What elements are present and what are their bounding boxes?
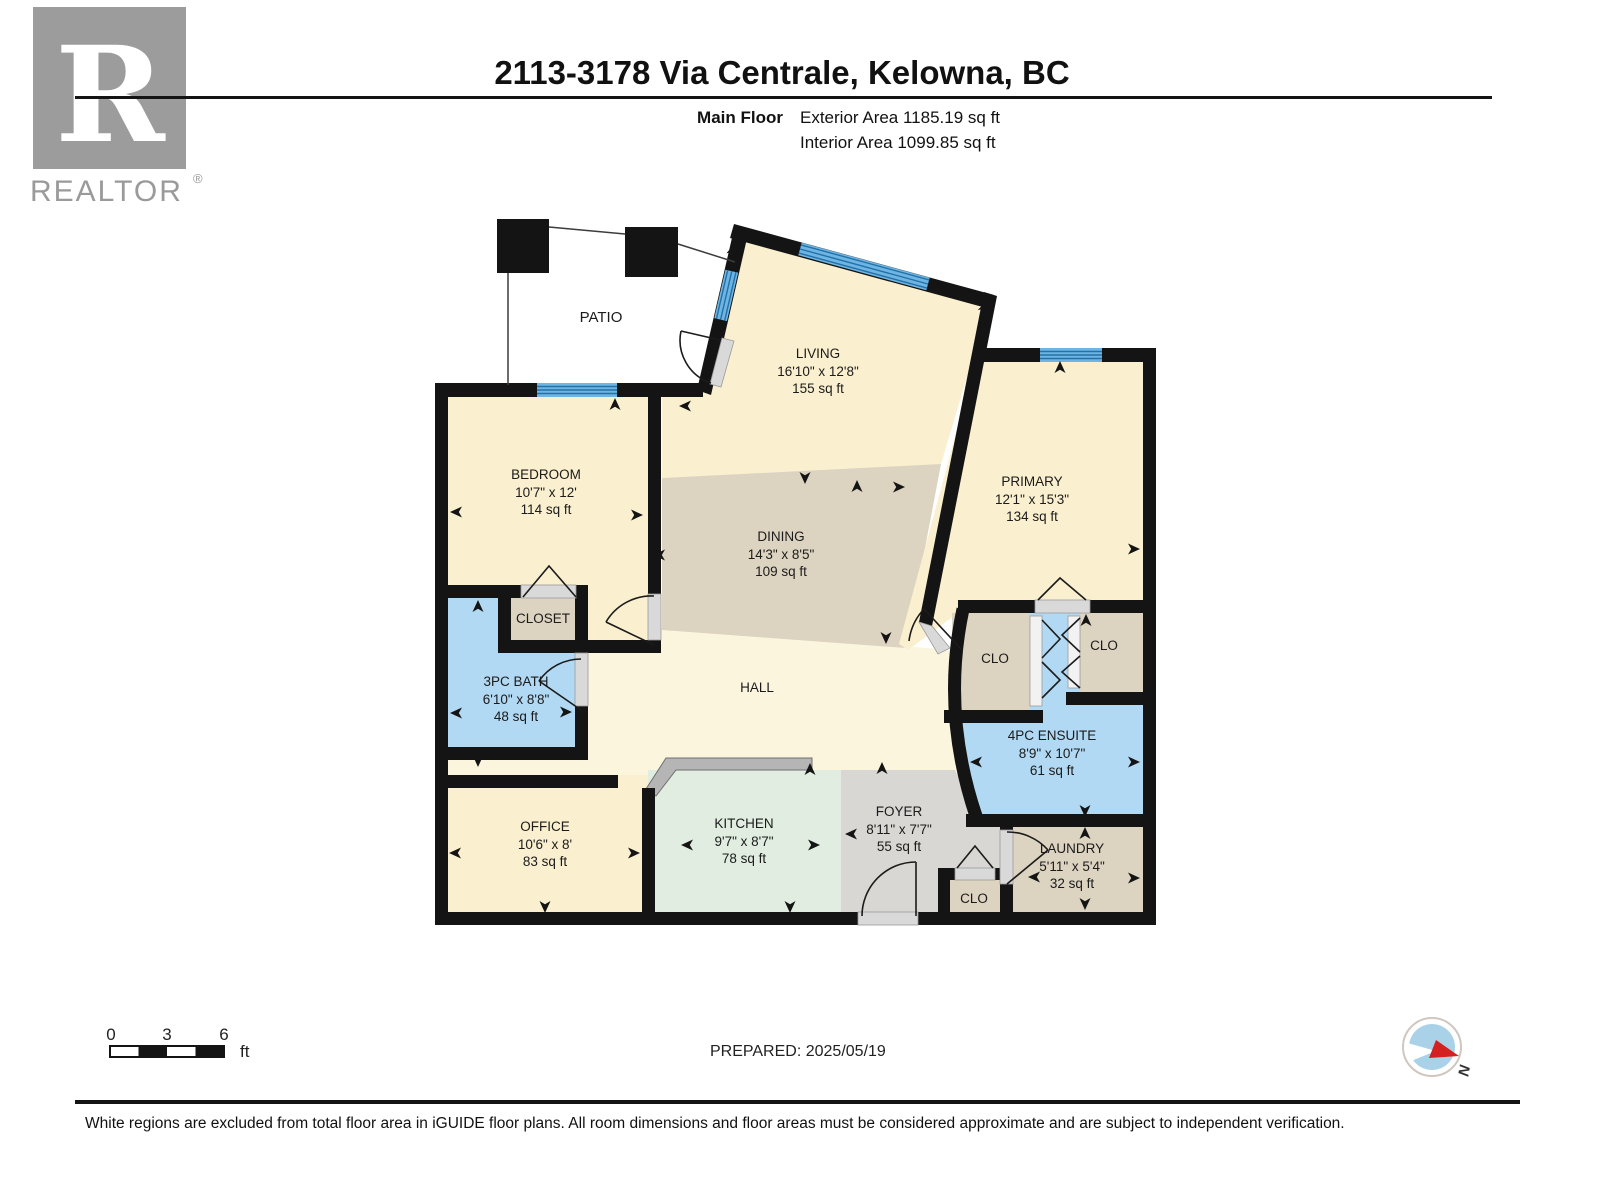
page-title: 2113-3178 Via Centrale, Kelowna, BC xyxy=(494,54,1069,91)
scale-bar-segment xyxy=(139,1046,168,1057)
floorplan: PATIO LIVING 16'10" x 12'8" 155 sq ft BE… xyxy=(435,219,1156,925)
scale-unit: ft xyxy=(240,1042,250,1061)
primary-window xyxy=(1040,348,1102,362)
footer-disclaimer: White regions are excluded from total fl… xyxy=(85,1115,1345,1132)
header-divider xyxy=(75,96,1492,99)
svg-text:PATIO: PATIO xyxy=(580,309,623,326)
room-kitchen-label: KITCHEN 9'7" x 8'7" 78 sq ft xyxy=(714,816,773,866)
svg-text:CLOSET: CLOSET xyxy=(516,611,570,626)
svg-text:BEDROOM: BEDROOM xyxy=(511,467,581,482)
svg-text:OFFICE: OFFICE xyxy=(520,819,570,834)
room-hall-label: HALL xyxy=(740,680,774,695)
footer-divider xyxy=(75,1100,1520,1104)
svg-text:HALL: HALL xyxy=(740,680,774,695)
svg-text:83 sq ft: 83 sq ft xyxy=(523,854,568,869)
svg-text:DINING: DINING xyxy=(757,529,804,544)
room-dining-label: DINING 14'3" x 8'5" 109 sq ft xyxy=(748,529,815,579)
svg-text:55 sq ft: 55 sq ft xyxy=(877,839,922,854)
floor-label: Main Floor xyxy=(697,108,783,127)
patio-structure xyxy=(497,219,735,385)
svg-text:LAUNDRY: LAUNDRY xyxy=(1040,841,1104,856)
realtor-logo: R REALTOR ® xyxy=(30,7,203,208)
exterior-area: Exterior Area 1185.19 sq ft xyxy=(800,108,1000,127)
svg-text:9'7" x 8'7": 9'7" x 8'7" xyxy=(714,834,773,849)
svg-text:6'10" x 8'8": 6'10" x 8'8" xyxy=(483,692,550,707)
svg-text:8'9" x 10'7": 8'9" x 10'7" xyxy=(1019,746,1086,761)
svg-text:KITCHEN: KITCHEN xyxy=(714,816,773,831)
patio-pillar xyxy=(625,227,678,277)
floorplan-page: R REALTOR ® 2113-3178 Via Centrale, Kelo… xyxy=(0,0,1600,1200)
realtor-logo-text: REALTOR xyxy=(30,175,183,208)
realtor-logo-letter: R xyxy=(55,18,166,173)
floorplan-canvas: R REALTOR ® 2113-3178 Via Centrale, Kelo… xyxy=(0,0,1600,1200)
registered-mark: ® xyxy=(193,171,203,186)
svg-text:10'6" x 8': 10'6" x 8' xyxy=(518,837,572,852)
footer: White regions are excluded from total fl… xyxy=(75,1100,1520,1132)
room-clo-entry-label: CLO xyxy=(960,891,988,906)
svg-text:32 sq ft: 32 sq ft xyxy=(1050,876,1095,891)
prepared-date: PREPARED: 2025/05/19 xyxy=(710,1043,886,1060)
interior-area: Interior Area 1099.85 sq ft xyxy=(800,133,996,152)
scale-bar-segment xyxy=(196,1046,225,1057)
room-patio-label: PATIO xyxy=(580,309,623,326)
svg-text:155 sq ft: 155 sq ft xyxy=(792,381,844,396)
room-office-label: OFFICE 10'6" x 8' 83 sq ft xyxy=(518,819,572,869)
svg-text:12'1" x 15'3": 12'1" x 15'3" xyxy=(995,492,1069,507)
svg-text:48 sq ft: 48 sq ft xyxy=(494,709,539,724)
svg-text:134 sq ft: 134 sq ft xyxy=(1006,509,1058,524)
svg-text:CLO: CLO xyxy=(960,891,988,906)
svg-text:PRIMARY: PRIMARY xyxy=(1001,474,1062,489)
room-clo-right-label: CLO xyxy=(1090,638,1118,653)
svg-text:61 sq ft: 61 sq ft xyxy=(1030,763,1075,778)
scale-tick-0: 0 xyxy=(106,1025,115,1044)
svg-text:FOYER: FOYER xyxy=(876,804,923,819)
compass-icon: N xyxy=(1403,1018,1473,1078)
patio-pillar xyxy=(497,219,549,273)
svg-text:4PC ENSUITE: 4PC ENSUITE xyxy=(1008,728,1097,743)
room-closet-label: CLOSET xyxy=(516,611,570,626)
svg-text:16'10" x 12'8": 16'10" x 12'8" xyxy=(777,364,859,379)
svg-text:109 sq ft: 109 sq ft xyxy=(755,564,807,579)
svg-text:114 sq ft: 114 sq ft xyxy=(521,502,572,517)
scale-tick-3: 3 xyxy=(162,1025,171,1044)
scale-bar: 0 3 6 ft xyxy=(106,1025,249,1061)
bedroom-window xyxy=(537,383,617,397)
compass-north-label: N xyxy=(1454,1063,1473,1078)
svg-text:14'3" x 8'5": 14'3" x 8'5" xyxy=(748,547,815,562)
svg-text:10'7" x 12': 10'7" x 12' xyxy=(515,485,577,500)
svg-text:8'11" x 7'7": 8'11" x 7'7" xyxy=(866,822,932,837)
svg-text:LIVING: LIVING xyxy=(796,346,840,361)
svg-text:CLO: CLO xyxy=(1090,638,1118,653)
scale-tick-6: 6 xyxy=(219,1025,228,1044)
svg-text:CLO: CLO xyxy=(981,651,1009,666)
svg-text:5'11" x 5'4": 5'11" x 5'4" xyxy=(1039,859,1105,874)
room-bedroom-label: BEDROOM 10'7" x 12' 114 sq ft xyxy=(511,467,581,517)
room-clo-left-label: CLO xyxy=(981,651,1009,666)
svg-text:78 sq ft: 78 sq ft xyxy=(722,851,767,866)
svg-text:3PC BATH: 3PC BATH xyxy=(483,674,548,689)
header: 2113-3178 Via Centrale, Kelowna, BC Main… xyxy=(75,54,1492,152)
